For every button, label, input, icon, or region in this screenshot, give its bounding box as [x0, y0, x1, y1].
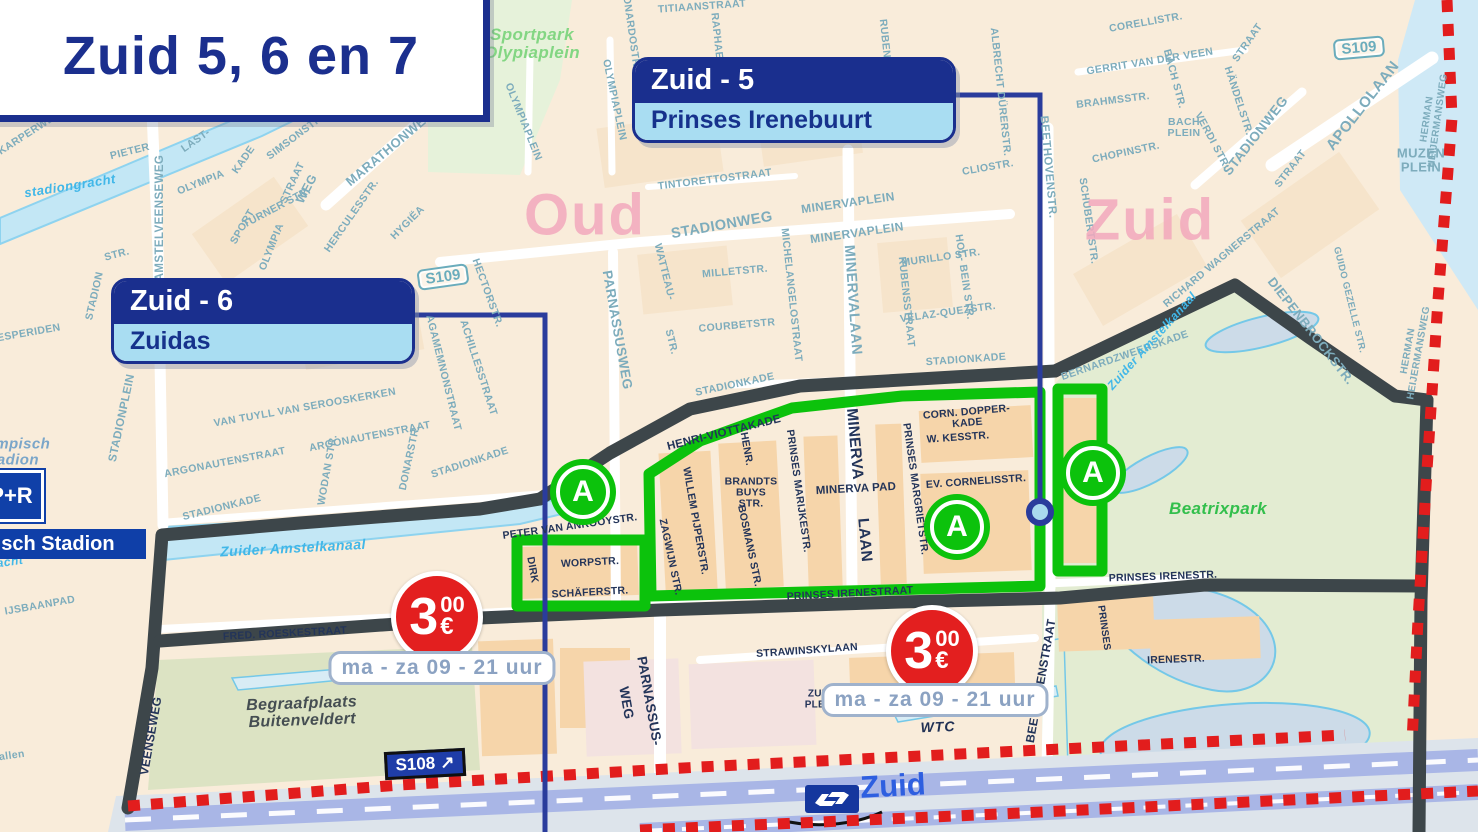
euro-icon: €	[935, 650, 948, 673]
road-badge-s109: S109	[1333, 35, 1386, 60]
callout-target-dot	[1029, 501, 1051, 523]
callout-area-name: Zuidas	[114, 324, 412, 361]
road-badge-s108-label: S108	[395, 753, 436, 775]
zone-a-marker: A	[1066, 446, 1120, 500]
ns-logo-icon	[805, 785, 859, 813]
parking-price-euros: 3	[409, 595, 438, 639]
map-title-text: Zuid 5, 6 en 7	[63, 25, 419, 87]
parking-hours-badge: ma - za 09 - 21 uur	[328, 651, 555, 685]
map-canvas: KARPERWEGPIETERAMSTELVEENSEWEGLAST-KADEO…	[0, 0, 1478, 832]
callout-zone-code: Zuid - 6	[114, 281, 412, 324]
zone-a-marker: A	[556, 465, 610, 519]
parking-hours-badge: ma - za 09 - 21 uur	[821, 683, 1048, 717]
building-blocks-pink	[583, 658, 816, 756]
map-title: Zuid 5, 6 en 7	[0, 0, 490, 122]
zone-a-marker: A	[930, 500, 984, 554]
callout-zuid-6: Zuid - 6 Zuidas	[111, 278, 415, 364]
parking-rate-badge: 3 00 €	[391, 571, 483, 663]
parking-price-euros: 3	[904, 629, 933, 673]
callout-zuid-5: Zuid - 5 Prinses Irenebuurt	[632, 57, 956, 143]
callout-zone-code: Zuid - 5	[635, 60, 953, 103]
road-badge-s108: S108 ↗	[384, 748, 466, 780]
station-label: Zuid	[859, 766, 926, 805]
park-and-ride-badge: P+R	[0, 470, 44, 522]
callout-area-name: Prinses Irenebuurt	[635, 103, 953, 140]
arrow-up-right-icon: ↗	[440, 752, 455, 773]
stadium-station-label: Olympisch Stadion	[0, 529, 146, 559]
euro-icon: €	[440, 616, 453, 639]
